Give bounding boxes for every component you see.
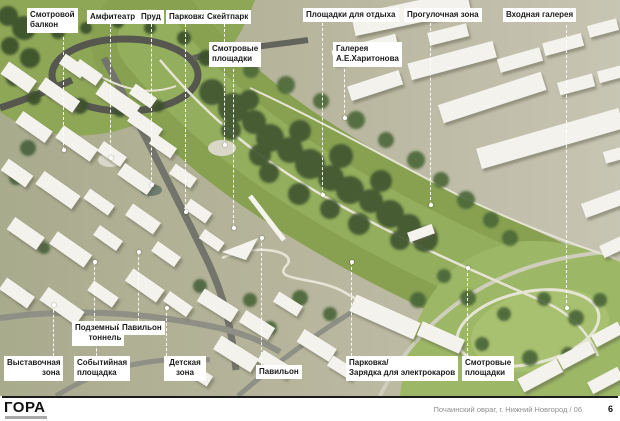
label-smotrovoy-balkon: Смотровой балкон: [27, 8, 78, 33]
slide-caption: Почаинский овраг, г. Нижний Новгород / 0…: [434, 405, 582, 414]
label-progulochnaya-zona: Прогулочная зона: [404, 8, 482, 22]
label-smotrovye-ploshchadki-bottom: Смотровые площадки: [462, 356, 514, 381]
skatepark-area: [208, 140, 236, 156]
label-skeytpark: Скейтпарк: [204, 10, 251, 24]
leader-line-kharitonova: [344, 64, 345, 118]
leader-line-detskaya: [166, 308, 167, 356]
leader-line-vkhodnaya: [566, 25, 567, 308]
label-vystavochnaya-zona: Выставочная зона: [4, 356, 63, 381]
label-pavilon-right: Павильон: [256, 365, 302, 379]
slide-footer: ГОРА Почаинский овраг, г. Нижний Новгоро…: [0, 396, 620, 421]
label-pavilon-left: Павильон: [119, 321, 165, 335]
leader-line-zaryadka: [351, 262, 352, 356]
leader-line-pavilon-right: [261, 238, 262, 365]
leader-line-otdykh: [322, 23, 323, 195]
leader-line-progulochnaya: [430, 23, 431, 205]
label-sobytiynaya-ploshchadka: Событийная площадка: [74, 356, 130, 381]
leader-line-prud: [151, 24, 152, 185]
label-prud: Пруд: [138, 10, 164, 24]
leader-line-pavilon-left: [138, 252, 139, 321]
label-smotrovye-ploshchadki-top: Смотровые площадки: [209, 42, 261, 67]
leader-line-smotrovye-bottom: [467, 268, 468, 356]
leader-line-parkovka-top: [185, 24, 186, 212]
leader-line-amfiteatr: [110, 24, 111, 158]
leader-line-vystavochnaya: [53, 305, 54, 356]
leader-line-smotrovoy-balkon: [63, 37, 64, 150]
label-galereya-kharitonova: Галерея А.Е.Харитонова: [333, 42, 402, 67]
label-parkovka-top: Парковка: [166, 10, 209, 24]
leader-line-sobytiynaya: [96, 344, 97, 356]
label-vkhodnaya-galereya: Входная галерея: [503, 8, 576, 22]
leader-line-tonnel: [94, 262, 95, 321]
leader-line-smotrovye-top: [233, 64, 234, 228]
label-amfiteatr: Амфитеатр: [87, 10, 138, 24]
label-podzemnyy-tonnel: Подземный тоннель: [72, 321, 124, 346]
gora-logo: ГОРА: [4, 400, 46, 415]
page-number: 6: [608, 404, 613, 414]
label-ploshchadki-dlya-otdykha: Площадки для отдыха: [303, 8, 399, 22]
logo-tagline: [5, 416, 47, 419]
footer-divider: [2, 396, 618, 398]
presentation-slide: Смотровой балкон Амфитеатр Пруд Парковка…: [0, 0, 620, 421]
label-detskaya-zona: Детская зона: [164, 356, 206, 381]
label-parkovka-zaryadka: Парковка/ Зарядка для электрокаров: [346, 356, 458, 381]
